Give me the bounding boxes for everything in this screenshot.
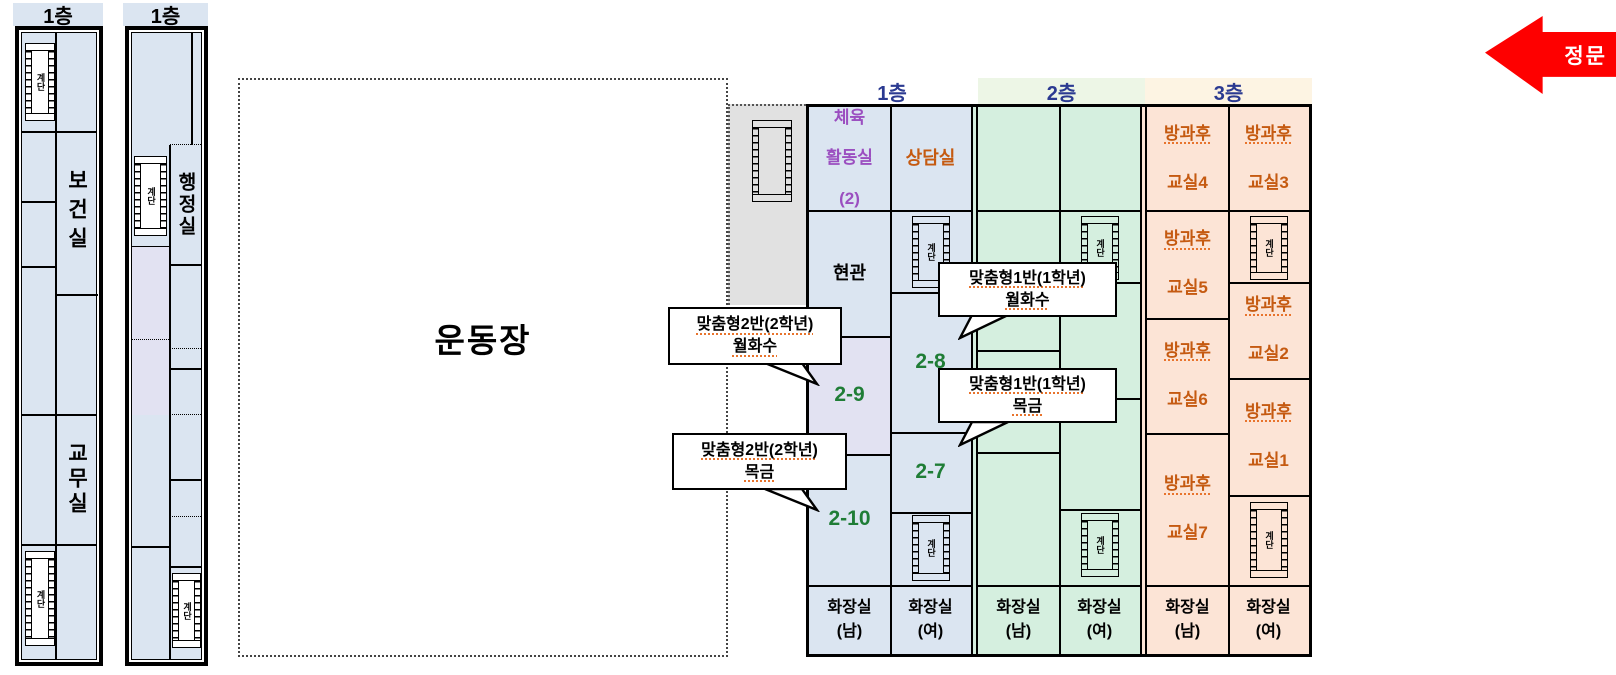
callout-custom2-thu: 맞춤형2반(2학년) 목금 xyxy=(672,433,847,490)
divider xyxy=(170,479,201,481)
room-gym-line2: 활동실 xyxy=(826,148,873,168)
callout-tail xyxy=(958,421,1010,447)
stairs-rail xyxy=(785,128,791,194)
stairs-cap xyxy=(753,194,791,201)
stairs-cap xyxy=(26,552,54,559)
room-gym-line3: (2) xyxy=(826,189,873,209)
stairs-cap xyxy=(753,121,791,128)
divider xyxy=(978,452,1059,454)
divider xyxy=(170,516,201,517)
floor2-header: 2층 xyxy=(978,78,1145,104)
stairs-icon: 계단 xyxy=(912,515,950,581)
stairs-cap xyxy=(26,44,54,51)
stairs-cap xyxy=(1082,569,1118,576)
stairs-icon: 계단 xyxy=(1081,513,1119,577)
stairs-rail xyxy=(160,164,166,228)
stairs-rail xyxy=(1281,224,1287,272)
stairs-label: 계단 xyxy=(32,51,48,113)
afterschool6-line1: 방과후 xyxy=(1164,339,1211,364)
callout-line1: 맞춤형1반(1학년) xyxy=(969,374,1086,396)
divider xyxy=(1228,495,1309,497)
afterschool2-line1: 방과후 xyxy=(1245,293,1292,318)
stairs-rail xyxy=(943,523,949,573)
stairs-mid: 계단 xyxy=(173,581,200,640)
callout-line1: 맞춤형2반(2학년) xyxy=(701,440,818,462)
stairs-cap xyxy=(1251,503,1287,510)
building-a: 계단 보건실 교무실 계단 xyxy=(15,26,103,666)
playground: 운동장 xyxy=(238,78,728,657)
room-counsel: 상담실 xyxy=(890,107,971,210)
stairs-mid: 계단 xyxy=(1082,521,1118,569)
room-cell xyxy=(132,247,169,415)
room-admin-office: 행정실 xyxy=(170,145,201,265)
divider xyxy=(55,33,57,659)
entry-yard xyxy=(728,104,806,305)
stairs-cap xyxy=(1082,217,1118,224)
afterschool5-line1: 방과후 xyxy=(1164,227,1211,252)
divider xyxy=(22,544,96,546)
floor3-header: 3층 xyxy=(1145,78,1312,104)
stairs-mid: 계단 xyxy=(913,523,949,573)
floor3-column: 방과후 교실4 방과후 교실3 방과후 교실5 방과후 교실2 방과후 교실6 … xyxy=(1140,107,1309,654)
room-gym-activity: 체육 활동실 (2) xyxy=(809,107,890,210)
stairs-label: 계단 xyxy=(1257,224,1281,272)
stairs-label: 계단 xyxy=(32,559,48,638)
divider xyxy=(55,294,98,296)
callout-tail xyxy=(958,314,1010,340)
stairs-icon: 계단 xyxy=(25,43,55,121)
stairs-cap xyxy=(913,217,949,224)
room-health-office: 보건실 xyxy=(56,131,96,294)
room-afterschool-2: 방과후 교실2 xyxy=(1228,282,1309,378)
callout-line1: 맞춤형1반(1학년) xyxy=(969,268,1086,290)
afterschool1-line1: 방과후 xyxy=(1245,400,1292,425)
floor1-header-label: 1층 xyxy=(877,77,907,106)
stairs-mid: 계단 xyxy=(1251,510,1287,570)
stairs-icon: 계단 xyxy=(134,156,167,236)
toilet-female-floor3: 화장실 (여) xyxy=(1228,585,1309,654)
divider xyxy=(978,210,1140,212)
callout-line2: 목금 xyxy=(1013,396,1042,418)
building-b: 행정실 계단 xyxy=(125,26,208,666)
main-gate-arrow: 정문 xyxy=(1485,16,1616,94)
stairs-cap xyxy=(1251,272,1287,279)
divider xyxy=(1059,509,1140,511)
stairs-label: 계단 xyxy=(141,164,160,228)
room-afterschool-5: 방과후 교실5 xyxy=(1147,210,1228,318)
floor2-header-label: 2층 xyxy=(1047,77,1077,106)
callout-custom2-mon: 맞춤형2반(2학년) 월화수 xyxy=(668,307,842,365)
room-afterschool-3: 방과후 교실3 xyxy=(1228,107,1309,210)
room-afterschool-1: 방과후 교실1 xyxy=(1228,378,1309,495)
callout-custom1-mon: 맞춤형1반(1학년) 월화수 xyxy=(938,262,1117,317)
afterschool6-line2: 교실6 xyxy=(1164,388,1211,413)
stairs-label: 계단 xyxy=(1257,510,1281,570)
divider xyxy=(191,33,193,145)
stairs-rail xyxy=(48,51,54,113)
stairs-icon: 계단 xyxy=(25,551,55,646)
callout-line2: 월화수 xyxy=(733,336,777,358)
toilet-male-floor3: 화장실 (남) xyxy=(1147,585,1228,654)
toilet-male-floor2: 화장실 (남) xyxy=(978,585,1059,654)
stairs-cap xyxy=(135,228,166,235)
stairs-cap xyxy=(1251,217,1287,224)
building-a-body: 계단 보건실 교무실 계단 xyxy=(21,32,97,660)
callout-custom1-thu: 맞춤형1반(1학년) 목금 xyxy=(938,368,1117,423)
divider xyxy=(978,350,1059,352)
divider xyxy=(170,264,201,266)
stairs-rail xyxy=(1281,510,1287,570)
stairs-icon: 계단 xyxy=(1250,502,1288,578)
afterschool2-line2: 교실2 xyxy=(1245,342,1292,367)
stairs-label: 계단 xyxy=(1088,521,1112,569)
room-teachers-office: 교무실 xyxy=(56,414,96,544)
stairs-cap xyxy=(26,113,54,120)
playground-label: 운동장 xyxy=(434,314,531,362)
divider xyxy=(170,368,201,370)
toilet-female-floor2: 화장실 (여) xyxy=(1059,585,1140,654)
stairs-cap xyxy=(173,574,200,581)
building-b-floor-header: 1층 xyxy=(123,3,208,26)
stairs-cap xyxy=(913,573,949,580)
afterschool3-line1: 방과후 xyxy=(1245,122,1292,147)
afterschool3-line2: 교실3 xyxy=(1245,171,1292,196)
room-afterschool-4: 방과후 교실4 xyxy=(1147,107,1228,210)
main-gate-label: 정문 xyxy=(1564,40,1607,70)
stairs-mid: 계단 xyxy=(26,559,54,638)
stairs-label: 계단 xyxy=(179,581,194,640)
afterschool4-line1: 방과후 xyxy=(1164,122,1211,147)
stairs-well xyxy=(759,128,785,194)
room-gym-line1: 체육 xyxy=(826,108,873,128)
divider xyxy=(890,512,971,514)
stairs-cap xyxy=(173,640,200,647)
stairs-icon: 계단 xyxy=(172,573,201,648)
afterschool7-line2: 교실7 xyxy=(1164,521,1211,546)
room-afterschool-6: 방과후 교실6 xyxy=(1147,318,1228,433)
stairs-mid: 계단 xyxy=(135,164,166,228)
stairs-mid: 계단 xyxy=(1251,224,1287,272)
callout-tail xyxy=(762,488,820,512)
afterschool7-line1: 방과후 xyxy=(1164,472,1211,497)
divider xyxy=(132,339,169,340)
stairs-cap xyxy=(1251,570,1287,577)
divider xyxy=(22,201,55,203)
building-a-floor-label: 1층 xyxy=(43,0,73,29)
afterschool1-line2: 교실1 xyxy=(1245,449,1292,474)
callout-line1: 맞춤형2반(2학년) xyxy=(697,314,814,336)
stairs-rail xyxy=(1112,521,1118,569)
stairs-cap xyxy=(135,157,166,164)
stairs-cap xyxy=(913,516,949,523)
stairs-rail xyxy=(194,581,200,640)
building-b-body: 행정실 계단 xyxy=(131,32,202,660)
building-b-floor-label: 1층 xyxy=(151,0,181,29)
callout-line2: 월화수 xyxy=(1005,290,1049,312)
floor3-header-label: 3층 xyxy=(1214,77,1244,106)
afterschool5-line2: 교실5 xyxy=(1164,276,1211,301)
stairs-cap xyxy=(26,638,54,645)
divider xyxy=(170,566,201,568)
stairs-mid: 계단 xyxy=(26,51,54,113)
callout-tail xyxy=(762,362,820,386)
stairs-icon: 계단 xyxy=(1250,216,1288,280)
stairs-mid xyxy=(753,128,791,194)
stairs-rail xyxy=(48,559,54,638)
divider xyxy=(132,546,169,548)
stairs-cap xyxy=(1082,514,1118,521)
divider xyxy=(22,266,55,268)
toilet-female-floor1: 화장실 (여) xyxy=(890,585,971,654)
divider xyxy=(170,348,201,349)
school-floor-plan: 1층 계단 보건실 교무실 xyxy=(0,0,1616,675)
afterschool4-line2: 교실4 xyxy=(1164,171,1211,196)
toilet-male-floor1: 화장실 (남) xyxy=(809,585,890,654)
stairs-icon xyxy=(752,120,792,202)
callout-line2: 목금 xyxy=(745,462,774,484)
room-afterschool-7: 방과후 교실7 xyxy=(1147,433,1228,585)
building-a-floor-header: 1층 xyxy=(13,3,103,26)
stairs-label: 계단 xyxy=(919,523,943,573)
divider xyxy=(170,414,201,415)
